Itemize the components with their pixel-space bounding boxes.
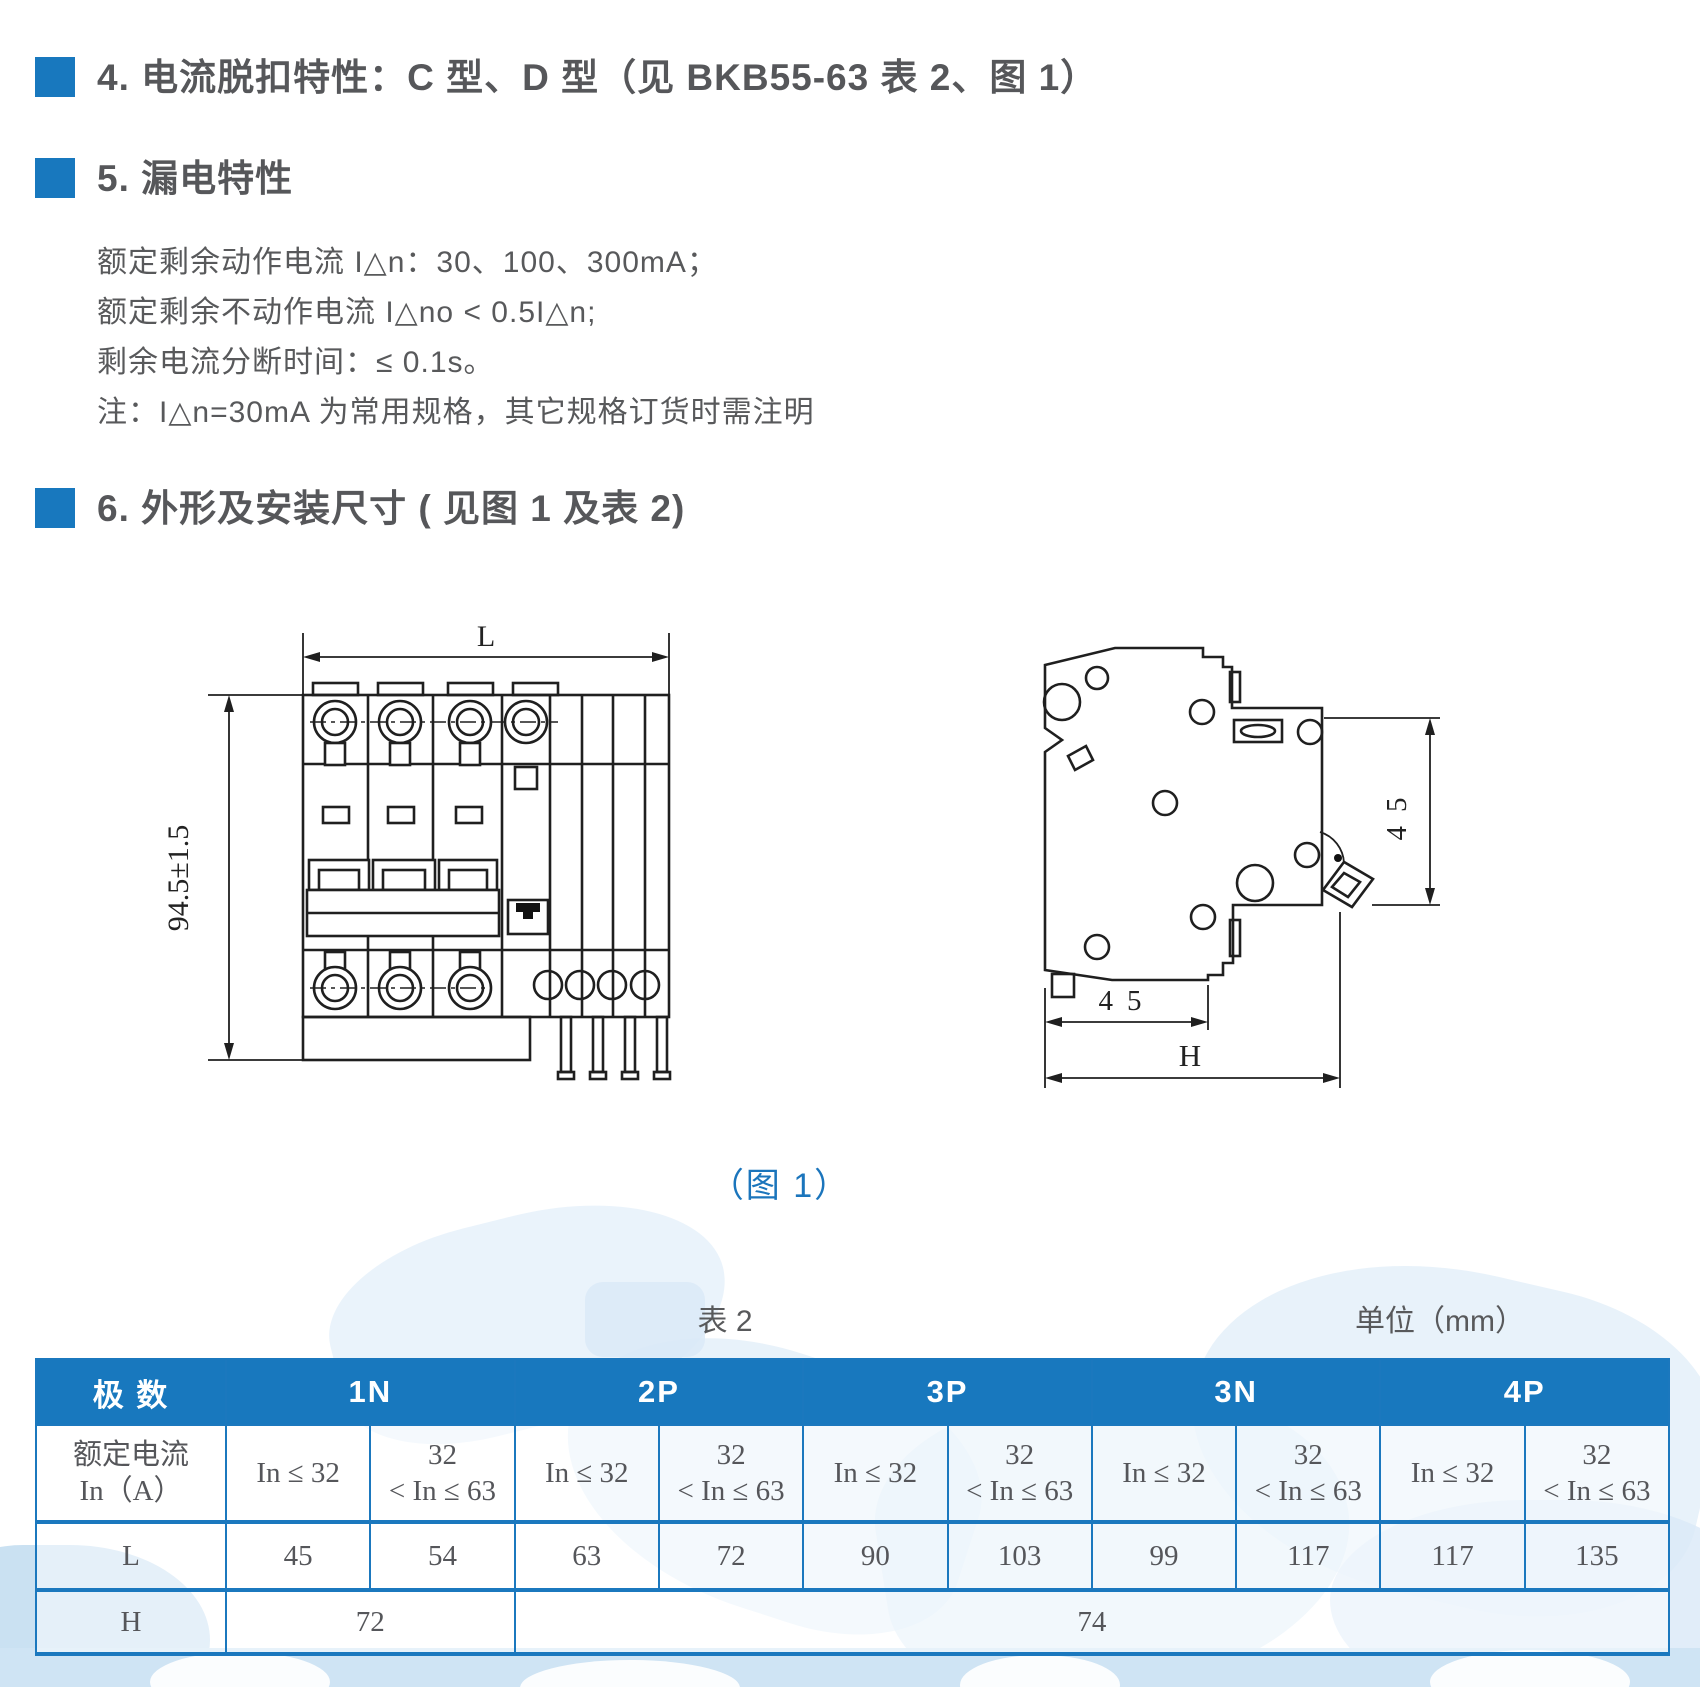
height-row: H 72 74 [36,1590,1669,1654]
header-2P: 2P [515,1359,804,1425]
length-row-label: L [36,1522,226,1590]
length-value: 135 [1525,1522,1669,1590]
length-value: 90 [803,1522,947,1590]
svg-text:H: H [1179,1038,1201,1073]
length-row: L 45 54 63 72 90 103 99 117 117 135 [36,1522,1669,1590]
section-4-heading: 4. 电流脱扣特性：C 型、D 型（见 BKB55-63 表 2、图 1） [35,57,1098,99]
height-value-1n: 72 [226,1590,515,1654]
header-4P: 4P [1380,1359,1669,1425]
section-bullet-icon [35,57,75,97]
length-value: 63 [515,1522,659,1590]
range-cell: 32 < In ≤ 63 [1236,1425,1380,1522]
length-value: 72 [659,1522,803,1590]
rated-current-label-line1: 额定电流 [37,1437,225,1473]
length-value: 117 [1236,1522,1380,1590]
figure-caption: （图 1） [640,1158,920,1207]
length-value: 45 [226,1522,370,1590]
range-cell: In ≤ 32 [515,1425,659,1522]
leakage-spec-line: 注：I△n=30mA 为常用规格，其它规格订货时需注明 [97,388,815,438]
range-line2: < In ≤ 63 [371,1473,513,1509]
section-4-title: 4. 电流脱扣特性：C 型、D 型（见 BKB55-63 表 2、图 1） [97,57,1098,99]
range-line1: 32 [371,1437,513,1473]
range-line1: 32 [1237,1437,1379,1473]
range-line2: < In ≤ 63 [949,1473,1091,1509]
range-cell: In ≤ 32 [1380,1425,1524,1522]
length-value: 117 [1380,1522,1524,1590]
section-bullet-icon [35,488,75,528]
range-cell: 32 < In ≤ 63 [948,1425,1092,1522]
range-cell: 32 < In ≤ 63 [659,1425,803,1522]
rated-current-label: 额定电流 In（A） [36,1425,226,1522]
table-label: 表 2 [640,1296,810,1340]
header-3N: 3N [1092,1359,1381,1425]
unit-label: 单位（mm） [1230,1296,1525,1340]
range-line1: 32 [660,1437,802,1473]
toggle-handle [307,860,499,936]
header-poles: 极 数 [36,1359,226,1425]
range-line2: < In ≤ 63 [660,1473,802,1509]
leakage-spec-line: 额定剩余动作电流 I△n：30、100、300mA； [97,238,718,288]
range-cell: In ≤ 32 [1092,1425,1236,1522]
section-5-heading: 5. 漏电特性 [35,158,293,200]
section-5-title: 5. 漏电特性 [97,158,293,200]
length-value: 99 [1092,1522,1236,1590]
header-1N: 1N [226,1359,515,1425]
range-line2: < In ≤ 63 [1237,1473,1379,1509]
bottom-terminal-screws [310,952,659,1009]
range-line2: < In ≤ 63 [1526,1473,1668,1509]
front-view-drawing: L 94.5±1.5 [80,560,730,1090]
side-toggle-lever [1320,832,1373,907]
range-cell: 32 < In ≤ 63 [370,1425,514,1522]
length-value: 54 [370,1522,514,1590]
datasheet-page: 4. 电流脱扣特性：C 型、D 型（见 BKB55-63 表 2、图 1） 5.… [0,0,1700,1687]
breaker-front-body [303,683,670,1079]
svg-text:45: 45 [1381,784,1413,841]
height-value-rest: 74 [515,1590,1669,1654]
breaker-side-body [1044,648,1373,997]
test-button [508,900,548,934]
leakage-spec-line: 剩余电流分断时间：≤ 0.1s。 [97,338,495,388]
length-value: 103 [948,1522,1092,1590]
range-cell: In ≤ 32 [226,1425,370,1522]
svg-text:L: L [477,620,495,653]
table-header-row: 极 数 1N 2P 3P 3N 4P [36,1359,1669,1425]
connection-pins [558,1017,670,1079]
rated-current-label-line2: In（A） [37,1473,225,1509]
svg-text:45: 45 [1099,985,1156,1017]
section-bullet-icon [35,158,75,198]
leakage-spec-line: 额定剩余不动作电流 I△no < 0.5I△n; [97,288,596,338]
dimensions-table: 极 数 1N 2P 3P 3N 4P 额定电流 In（A） In ≤ 32 32… [35,1358,1670,1656]
height-row-label: H [36,1590,226,1654]
range-line1: 32 [1526,1437,1668,1473]
header-3P: 3P [803,1359,1092,1425]
rated-current-row: 额定电流 In（A） In ≤ 32 32 < In ≤ 63 In ≤ 32 … [36,1425,1669,1522]
range-cell: 32 < In ≤ 63 [1525,1425,1669,1522]
range-cell: In ≤ 32 [803,1425,947,1522]
side-view-drawing: 45 45 H [940,560,1500,1100]
section-6-title: 6. 外形及安装尺寸 ( 见图 1 及表 2) [97,488,685,530]
svg-text:94.5±1.5: 94.5±1.5 [162,825,195,931]
dimension-height: 94.5±1.5 [162,695,318,1060]
range-line1: 32 [949,1437,1091,1473]
section-6-heading: 6. 外形及安装尺寸 ( 见图 1 及表 2) [35,488,685,530]
